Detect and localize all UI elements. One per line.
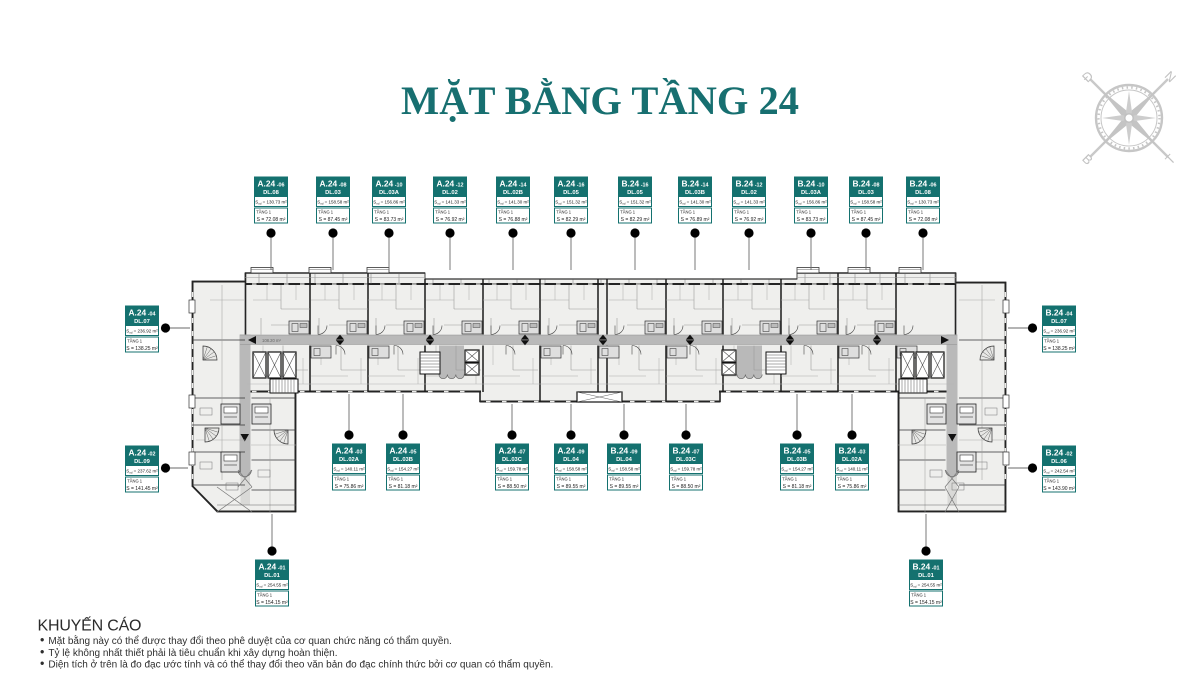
svg-text:S = 76.88 m²: S = 76.88 m²	[499, 217, 528, 223]
svg-text:TẦNG 1: TẦNG 1	[556, 209, 572, 214]
svg-text:DL.08: DL.08	[263, 190, 280, 196]
svg-text:TẦNG 1: TẦNG 1	[127, 338, 143, 343]
svg-text:TẦNG 1: TẦNG 1	[734, 209, 750, 214]
svg-text:Sxd = 254.55 m²: Sxd = 254.55 m²	[910, 583, 942, 589]
svg-text:DL.01: DL.01	[264, 573, 281, 579]
svg-text:KHUYẾN CÁO: KHUYẾN CÁO	[38, 616, 142, 635]
svg-text:TẦNG 1: TẦNG 1	[680, 209, 696, 214]
svg-text:Sxd = 151.32 m²: Sxd = 151.32 m²	[555, 200, 587, 206]
svg-text:DL.03C: DL.03C	[502, 457, 523, 463]
svg-text:DL.05: DL.05	[627, 190, 644, 196]
svg-text:DL.07: DL.07	[1051, 319, 1067, 325]
svg-text:S = 82.29 m²: S = 82.29 m²	[557, 217, 586, 223]
svg-text:DL.03B: DL.03B	[685, 190, 705, 196]
svg-text:TẦNG 1: TẦNG 1	[908, 209, 924, 214]
svg-text:DL.03: DL.03	[858, 190, 875, 196]
svg-text:TẦNG 1: TẦNG 1	[796, 209, 812, 214]
svg-text:Sxd = 159.78 m²: Sxd = 159.78 m²	[496, 467, 528, 473]
svg-text:Sxd = 141.33 m²: Sxd = 141.33 m²	[733, 200, 765, 206]
svg-text:S = 141.45 m²: S = 141.45 m²	[126, 486, 158, 492]
svg-text:DL.02A: DL.02A	[842, 457, 863, 463]
svg-text:S = 87.45 m²: S = 87.45 m²	[852, 217, 881, 223]
svg-text:S = 138.25 m²: S = 138.25 m²	[1043, 346, 1075, 352]
svg-text:DL.03: DL.03	[325, 190, 342, 196]
svg-text:•Tỷ lệ không nhất thiết phải l: •Tỷ lệ không nhất thiết phải là tiêu chu…	[40, 645, 338, 659]
svg-text:Sxd = 237.62 m²: Sxd = 237.62 m²	[126, 469, 158, 475]
svg-text:TẦNG 1: TẦNG 1	[388, 476, 404, 481]
svg-text:Sxd = 140.11 m²: Sxd = 140.11 m²	[333, 467, 365, 473]
svg-text:S = 81.18 m²: S = 81.18 m²	[389, 484, 418, 490]
svg-text:TẦNG 1: TẦNG 1	[435, 209, 451, 214]
svg-text:Sxd = 141.30 m²: Sxd = 141.30 m²	[679, 200, 711, 206]
svg-text:S = 88.50 m²: S = 88.50 m²	[672, 484, 701, 490]
svg-text:Sxd = 141.30 m²: Sxd = 141.30 m²	[497, 200, 529, 206]
svg-text:Sxd = 158.58 m²: Sxd = 158.58 m²	[317, 200, 349, 206]
svg-text:TẦNG 1: TẦNG 1	[782, 476, 798, 481]
svg-text:S = 76.92 m²: S = 76.92 m²	[735, 217, 764, 223]
svg-text:S = 138.25 m²: S = 138.25 m²	[126, 346, 158, 352]
svg-text:TẦNG 1: TẦNG 1	[837, 476, 853, 481]
svg-text:DL.03B: DL.03B	[393, 457, 413, 463]
svg-text:Sxd = 141.33 m²: Sxd = 141.33 m²	[434, 200, 466, 206]
svg-text:TẦNG 1: TẦNG 1	[334, 476, 350, 481]
svg-text:TẦNG 1: TẦNG 1	[1044, 338, 1060, 343]
svg-text:•Diện tích ở trên là đo đạc ướ: •Diện tích ở trên là đo đạc ước tính và …	[40, 657, 553, 671]
svg-text:S = 76.92 m²: S = 76.92 m²	[436, 217, 465, 223]
svg-text:Sxd = 158.58 m²: Sxd = 158.58 m²	[608, 467, 640, 473]
svg-text:108.20 m²: 108.20 m²	[262, 338, 281, 343]
svg-text:DL.02A: DL.02A	[339, 457, 360, 463]
svg-text:Sxd = 154.27 m²: Sxd = 154.27 m²	[781, 467, 813, 473]
svg-text:S = 154.15 m²: S = 154.15 m²	[910, 600, 942, 606]
svg-text:TẦNG 1: TẦNG 1	[497, 476, 513, 481]
svg-text:Sxd = 154.27 m²: Sxd = 154.27 m²	[387, 467, 419, 473]
svg-text:DL.05: DL.05	[563, 190, 580, 196]
svg-text:TẦNG 1: TẦNG 1	[671, 476, 687, 481]
svg-text:TẦNG 1: TẦNG 1	[318, 209, 334, 214]
svg-text:DL.02: DL.02	[741, 190, 757, 196]
svg-text:DL.03B: DL.03B	[787, 457, 807, 463]
svg-text:TẦNG 1: TẦNG 1	[609, 476, 625, 481]
svg-text:DL.02: DL.02	[442, 190, 458, 196]
svg-text:TẦNG 1: TẦNG 1	[498, 209, 514, 214]
svg-text:S = 72.08 m²: S = 72.08 m²	[257, 217, 286, 223]
svg-text:TẦNG 1: TẦNG 1	[127, 478, 143, 483]
svg-text:DL.04: DL.04	[563, 457, 580, 463]
svg-text:TẦNG 1: TẦNG 1	[911, 592, 927, 597]
svg-text:Sxd = 151.32 m²: Sxd = 151.32 m²	[619, 200, 651, 206]
svg-text:S = 154.15 m²: S = 154.15 m²	[256, 600, 288, 606]
svg-text:Sxd = 158.58 m²: Sxd = 158.58 m²	[555, 467, 587, 473]
svg-text:DL.02B: DL.02B	[503, 190, 523, 196]
svg-text:•Mặt bằng này có thể được thay: •Mặt bằng này có thể được thay đổi theo …	[40, 633, 452, 647]
svg-text:S = 75.86 m²: S = 75.86 m²	[838, 484, 867, 490]
svg-text:S = 88.50 m²: S = 88.50 m²	[498, 484, 527, 490]
svg-text:DL.04: DL.04	[616, 457, 633, 463]
svg-text:S = 83.73 m²: S = 83.73 m²	[797, 217, 826, 223]
svg-text:S = 81.18 m²: S = 81.18 m²	[783, 484, 812, 490]
svg-text:Sxd = 236.92 m²: Sxd = 236.92 m²	[1043, 329, 1075, 335]
svg-text:DL.06: DL.06	[1051, 459, 1068, 465]
svg-text:S = 75.86 m²: S = 75.86 m²	[335, 484, 364, 490]
svg-text:TẦNG 1: TẦNG 1	[851, 209, 867, 214]
svg-text:Sxd = 156.86 m²: Sxd = 156.86 m²	[373, 200, 405, 206]
svg-text:S = 89.55 m²: S = 89.55 m²	[610, 484, 639, 490]
svg-text:TẦNG 1: TẦNG 1	[256, 209, 272, 214]
svg-text:Sxd = 130.73 m²: Sxd = 130.73 m²	[907, 200, 939, 206]
svg-text:S = 82.29 m²: S = 82.29 m²	[621, 217, 650, 223]
svg-text:S = 143.90 m²: S = 143.90 m²	[1043, 486, 1075, 492]
svg-text:TẦNG 1: TẦNG 1	[374, 209, 390, 214]
svg-text:Sxd = 158.58 m²: Sxd = 158.58 m²	[850, 200, 882, 206]
svg-text:TẦNG 1: TẦNG 1	[556, 476, 572, 481]
svg-text:S = 76.89 m²: S = 76.89 m²	[681, 217, 710, 223]
svg-text:DL.09: DL.09	[134, 459, 151, 465]
svg-text:S = 89.55 m²: S = 89.55 m²	[557, 484, 586, 490]
svg-text:TẦNG 1: TẦNG 1	[257, 592, 273, 597]
svg-text:DL.03A: DL.03A	[379, 190, 400, 196]
svg-text:Sxd = 254.55 m²: Sxd = 254.55 m²	[256, 583, 288, 589]
svg-text:Sxd = 159.78 m²: Sxd = 159.78 m²	[670, 467, 702, 473]
svg-text:Sxd = 236.92 m²: Sxd = 236.92 m²	[126, 329, 158, 335]
svg-text:Sxd = 156.86 m²: Sxd = 156.86 m²	[795, 200, 827, 206]
svg-text:S = 83.73 m²: S = 83.73 m²	[375, 217, 404, 223]
svg-text:Sxd = 140.11 m²: Sxd = 140.11 m²	[836, 467, 868, 473]
svg-text:DL.07: DL.07	[134, 319, 150, 325]
svg-text:DL.03A: DL.03A	[801, 190, 822, 196]
svg-text:MẶT BẰNG TẦNG 24: MẶT BẰNG TẦNG 24	[401, 78, 799, 123]
svg-text:DL.08: DL.08	[915, 190, 932, 196]
svg-text:S = 87.45 m²: S = 87.45 m²	[319, 217, 348, 223]
svg-text:Sxd = 242.54 m²: Sxd = 242.54 m²	[1043, 469, 1075, 475]
svg-text:TẦNG 1: TẦNG 1	[620, 209, 636, 214]
svg-text:Sxd = 130.73 m²: Sxd = 130.73 m²	[255, 200, 287, 206]
svg-text:DL.01: DL.01	[918, 573, 935, 579]
svg-text:TẦNG 1: TẦNG 1	[1044, 478, 1060, 483]
svg-text:S = 72.08 m²: S = 72.08 m²	[909, 217, 938, 223]
svg-text:DL.03C: DL.03C	[676, 457, 697, 463]
